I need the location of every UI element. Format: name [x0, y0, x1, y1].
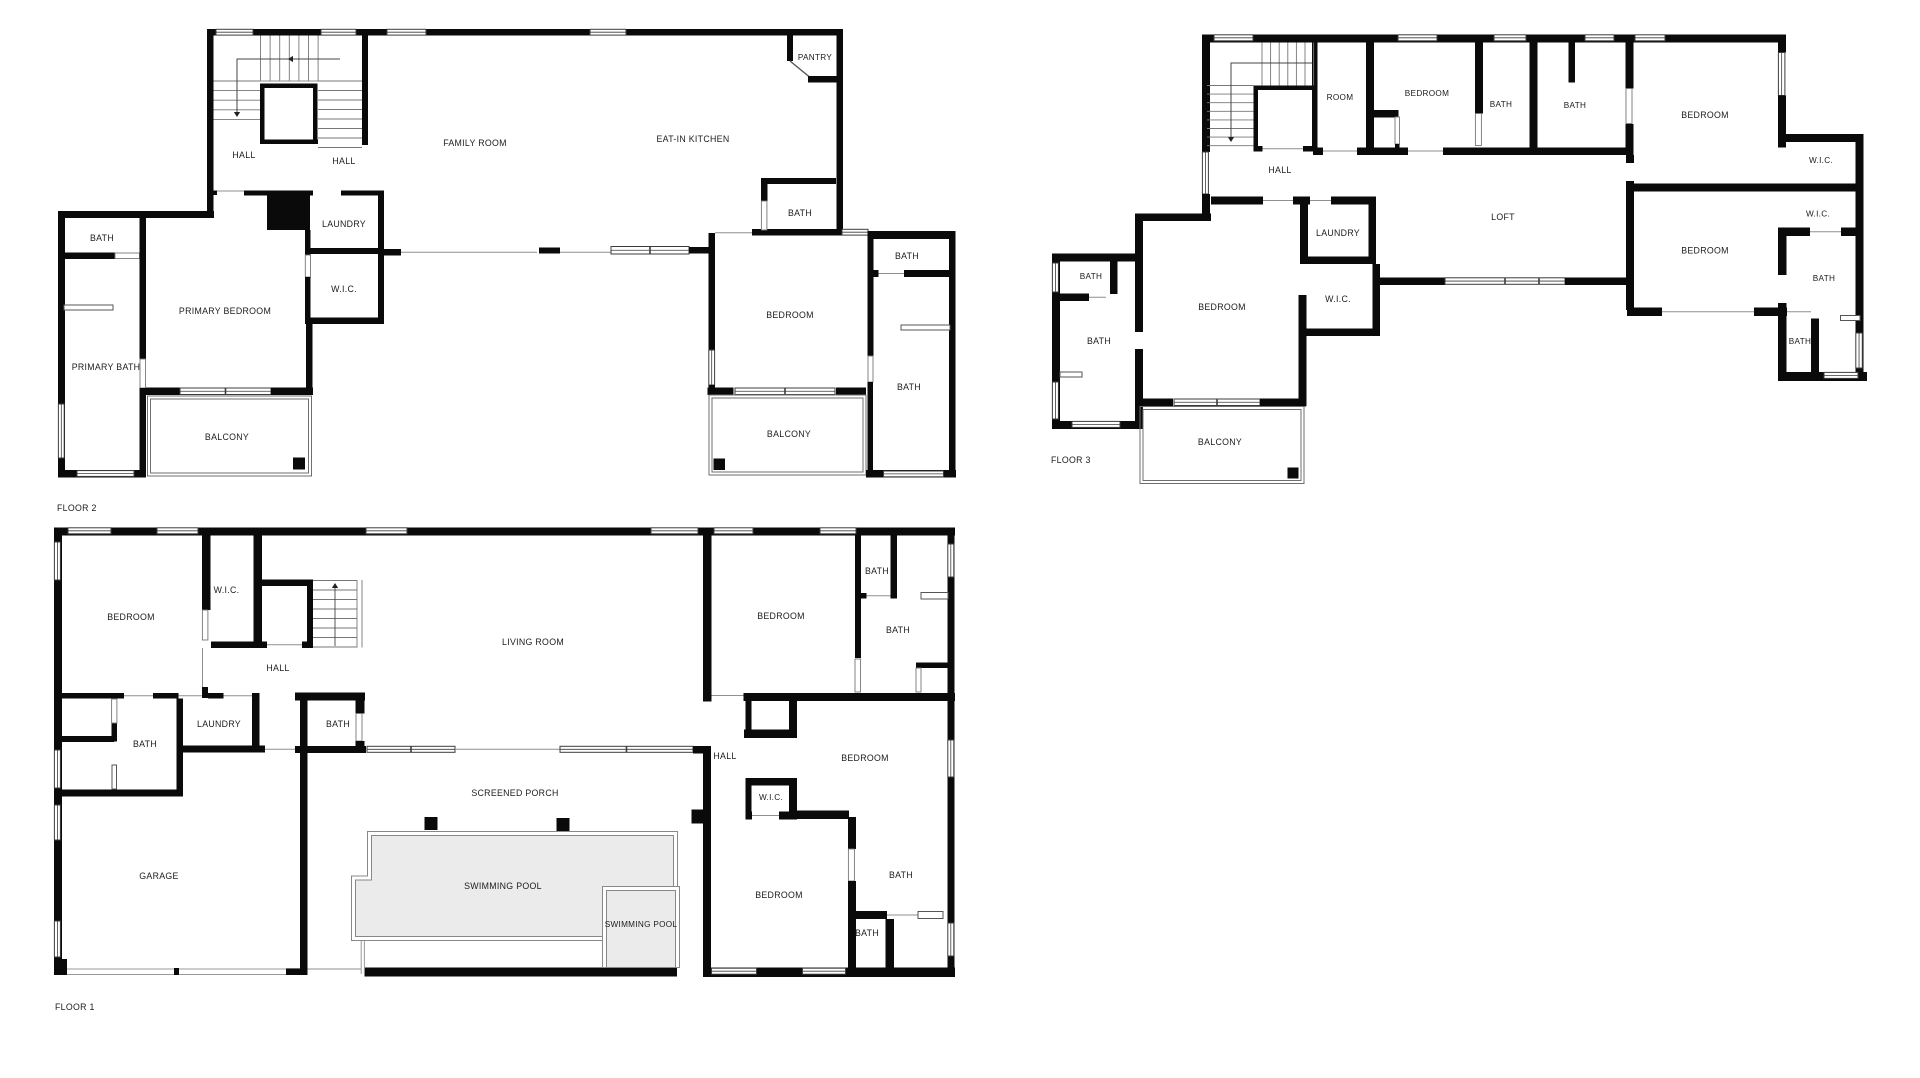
svg-text:BATH: BATH: [326, 719, 350, 729]
svg-text:LAUNDRY: LAUNDRY: [1316, 228, 1360, 238]
svg-text:BEDROOM: BEDROOM: [757, 611, 805, 621]
svg-text:FLOOR 3: FLOOR 3: [1051, 455, 1091, 465]
svg-text:HALL: HALL: [713, 751, 736, 761]
svg-text:FLOOR 1: FLOOR 1: [55, 1002, 95, 1012]
svg-text:PRIMARY BATH: PRIMARY BATH: [72, 362, 141, 372]
svg-text:BATH: BATH: [90, 233, 114, 243]
svg-text:BATH: BATH: [788, 208, 812, 218]
svg-text:HALL: HALL: [332, 156, 355, 166]
svg-text:W.I.C.: W.I.C.: [1806, 210, 1830, 219]
svg-text:W.I.C.: W.I.C.: [1809, 156, 1833, 165]
svg-text:W.I.C.: W.I.C.: [1325, 294, 1351, 304]
svg-text:BEDROOM: BEDROOM: [1405, 89, 1449, 98]
svg-text:PANTRY: PANTRY: [798, 53, 832, 62]
svg-text:EAT-IN KITCHEN: EAT-IN KITCHEN: [657, 134, 730, 144]
svg-text:HALL: HALL: [266, 663, 289, 673]
svg-text:LIVING ROOM: LIVING ROOM: [502, 637, 564, 647]
svg-text:W.I.C.: W.I.C.: [214, 585, 240, 595]
svg-text:BEDROOM: BEDROOM: [841, 753, 889, 763]
svg-text:LAUNDRY: LAUNDRY: [322, 219, 366, 229]
svg-text:BATH: BATH: [895, 251, 919, 261]
svg-text:W.I.C.: W.I.C.: [759, 793, 783, 802]
svg-text:BATH: BATH: [133, 739, 157, 749]
svg-text:BEDROOM: BEDROOM: [766, 310, 814, 320]
svg-text:ROOM: ROOM: [1327, 93, 1354, 102]
svg-text:BATH: BATH: [1080, 272, 1102, 281]
svg-text:BATH: BATH: [1564, 101, 1586, 110]
svg-text:LAUNDRY: LAUNDRY: [197, 719, 241, 729]
svg-text:BALCONY: BALCONY: [1198, 437, 1242, 447]
svg-text:BATH: BATH: [889, 870, 913, 880]
svg-text:BALCONY: BALCONY: [205, 432, 249, 442]
svg-text:PRIMARY BEDROOM: PRIMARY BEDROOM: [179, 306, 271, 316]
svg-text:FAMILY ROOM: FAMILY ROOM: [443, 138, 507, 148]
svg-text:SWIMMING POOL: SWIMMING POOL: [605, 920, 678, 929]
svg-text:BEDROOM: BEDROOM: [1681, 246, 1729, 256]
svg-text:BEDROOM: BEDROOM: [755, 890, 803, 900]
svg-text:FLOOR 2: FLOOR 2: [57, 503, 97, 513]
svg-text:SCREENED PORCH: SCREENED PORCH: [471, 788, 558, 798]
svg-text:HALL: HALL: [1268, 165, 1291, 175]
svg-text:BATH: BATH: [855, 928, 879, 938]
svg-text:BALCONY: BALCONY: [767, 429, 811, 439]
svg-text:HALL: HALL: [232, 150, 255, 160]
svg-text:BATH: BATH: [897, 382, 921, 392]
svg-text:BATH: BATH: [886, 625, 910, 635]
svg-text:SWIMMING POOL: SWIMMING POOL: [464, 881, 542, 891]
svg-text:GARAGE: GARAGE: [139, 871, 178, 881]
svg-text:BEDROOM: BEDROOM: [1681, 110, 1729, 120]
svg-text:W.I.C.: W.I.C.: [331, 284, 357, 294]
svg-text:LOFT: LOFT: [1491, 212, 1515, 222]
svg-text:BEDROOM: BEDROOM: [107, 612, 155, 622]
svg-text:BATH: BATH: [1789, 337, 1811, 346]
svg-text:BATH: BATH: [1490, 100, 1512, 109]
svg-text:BEDROOM: BEDROOM: [1198, 302, 1246, 312]
svg-text:BATH: BATH: [1813, 274, 1835, 283]
svg-text:BATH: BATH: [865, 566, 889, 576]
svg-text:BATH: BATH: [1087, 336, 1111, 346]
